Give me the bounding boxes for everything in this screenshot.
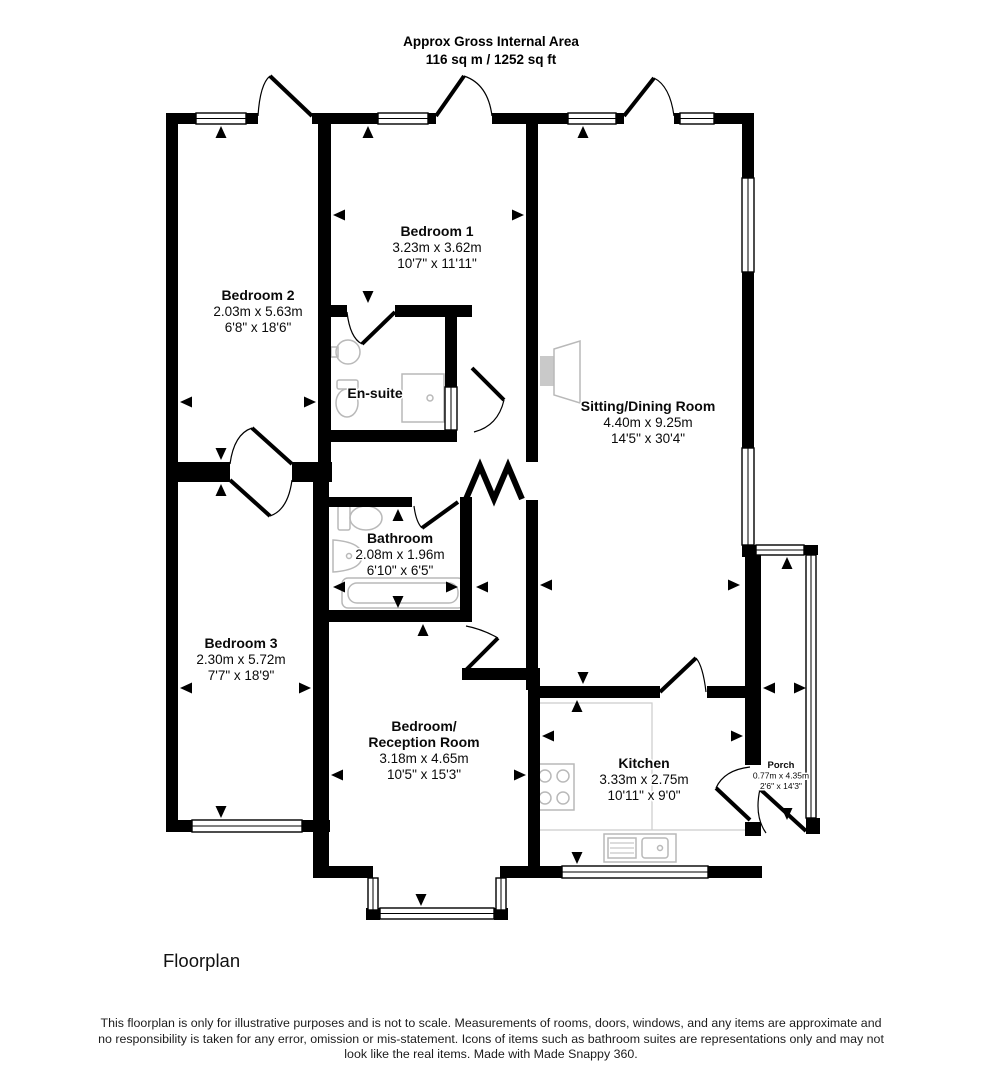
wall-segment	[313, 497, 412, 507]
wall-segment	[708, 866, 762, 878]
door-icon	[230, 428, 292, 464]
wall-segment	[707, 686, 745, 698]
measure-arrow-icon	[514, 770, 526, 781]
measure-arrow-icon	[180, 683, 192, 694]
measure-arrow-icon	[333, 582, 345, 593]
windows	[192, 113, 816, 919]
opening-zigzag-icon	[466, 466, 522, 499]
wall-segment	[395, 305, 472, 317]
room-label-text: 3.18m x 4.65m	[379, 751, 468, 766]
room-label-text: 2.30m x 5.72m	[196, 652, 285, 667]
window-icon	[378, 113, 428, 124]
door-icon	[716, 767, 750, 820]
room-label-text: Bedroom/	[391, 718, 456, 734]
wall-segment	[806, 818, 820, 834]
door-icon	[472, 368, 504, 432]
door-icon	[436, 76, 492, 116]
measure-arrow-icon	[363, 126, 374, 138]
room-label-text: En-suite	[347, 385, 402, 401]
room-label-kitchen: Kitchen3.33m x 2.75m10'11" x 9'0"	[599, 755, 688, 803]
measure-arrow-icon	[418, 624, 429, 636]
wall-segment	[166, 820, 192, 832]
wall-segment	[318, 430, 457, 442]
room-label-text: 2.03m x 5.63m	[213, 304, 302, 319]
measure-arrow-icon	[331, 770, 343, 781]
wall-segment	[528, 668, 540, 878]
wall-segment	[313, 472, 329, 878]
wall-segment	[540, 866, 562, 878]
wall-segment	[745, 553, 761, 765]
room-label-porch: Porch0.77m x 4.35m2'6" x 14'3"	[753, 760, 809, 791]
measure-arrow-icon	[542, 731, 554, 742]
measure-arrow-icon	[728, 580, 740, 591]
door-icon	[258, 76, 312, 116]
wall-segment	[318, 113, 331, 462]
door-icon	[466, 626, 498, 670]
room-label-text: Bathroom	[367, 530, 433, 546]
measure-arrow-icon	[363, 291, 374, 303]
measure-arrow-icon	[393, 509, 404, 521]
room-label-en-suite: En-suite	[347, 385, 402, 401]
shower-tray-icon	[402, 374, 444, 422]
wall-segment	[674, 113, 680, 124]
toilet-icon	[350, 506, 382, 530]
measure-arrow-icon	[572, 852, 583, 864]
floorplan-page: Approx Gross Internal Area 116 sq m / 12…	[0, 0, 982, 1080]
window-icon	[742, 178, 754, 272]
bath-icon	[348, 583, 458, 603]
measure-arrow-icon	[572, 700, 583, 712]
wall-segment	[166, 472, 230, 482]
wall-segment	[742, 545, 756, 557]
wall-segment	[526, 500, 538, 690]
room-label-text: 10'7" x 11'11"	[397, 256, 477, 271]
wall-segment	[445, 317, 457, 387]
room-label-text: 6'8" x 18'6"	[225, 320, 292, 335]
window-icon	[680, 113, 714, 124]
door-icon	[758, 789, 806, 833]
measure-arrow-icon	[216, 448, 227, 460]
measure-arrow-icon	[763, 683, 775, 694]
measure-arrow-icon	[578, 126, 589, 138]
floorplan-svg: Bedroom 13.23m x 3.62m10'7" x 11'11"Bedr…	[0, 0, 982, 1080]
basin-icon	[336, 340, 360, 364]
fireplace-icon	[554, 341, 580, 403]
window-icon	[196, 113, 246, 124]
room-label-sitting-dining-room: Sitting/Dining Room4.40m x 9.25m14'5" x …	[581, 398, 716, 446]
window-icon	[742, 448, 754, 545]
window-icon	[496, 878, 506, 910]
disclaimer-text: This floorplan is only for illustrative …	[95, 1016, 887, 1063]
wall-segment	[804, 545, 818, 555]
room-label-text: Kitchen	[618, 755, 669, 771]
room-label-text: Reception Room	[368, 734, 479, 750]
door-icon	[230, 480, 292, 516]
measure-arrow-icon	[782, 557, 793, 569]
measure-arrow-icon	[216, 126, 227, 138]
measure-arrow-icon	[393, 596, 404, 608]
room-label-text: 6'10" x 6'5"	[367, 563, 434, 578]
walls	[166, 113, 820, 920]
door-icon	[347, 312, 395, 344]
room-label-text: 4.40m x 9.25m	[603, 415, 692, 430]
window-icon	[568, 113, 616, 124]
measure-arrows	[180, 126, 806, 906]
window-icon	[380, 908, 494, 919]
fireplace-icon	[540, 356, 554, 386]
wall-segment	[742, 272, 754, 448]
wall-segment	[246, 113, 258, 124]
room-labels: Bedroom 13.23m x 3.62m10'7" x 11'11"Bedr…	[196, 223, 809, 803]
wall-segment	[538, 686, 660, 698]
wall-segment	[318, 305, 347, 317]
floorplan-caption: Floorplan	[163, 950, 240, 972]
measure-arrow-icon	[299, 683, 311, 694]
measure-arrow-icon	[731, 731, 743, 742]
sink-icon	[347, 554, 352, 559]
door-icon	[624, 78, 674, 116]
opening	[466, 466, 522, 499]
measure-arrow-icon	[216, 806, 227, 818]
measure-arrow-icon	[333, 210, 345, 221]
room-label-text: 10'5" x 15'3"	[387, 767, 461, 782]
room-label-text: 3.33m x 2.75m	[599, 772, 688, 787]
window-icon	[192, 820, 302, 832]
wall-segment	[526, 113, 538, 462]
measure-arrow-icon	[540, 580, 552, 591]
room-label-text: 7'7" x 18'9"	[208, 668, 275, 683]
room-label-text: 14'5" x 30'4"	[611, 431, 685, 446]
room-label-bathroom: Bathroom2.08m x 1.96m6'10" x 6'5"	[355, 530, 444, 578]
measure-arrow-icon	[180, 397, 192, 408]
room-label-bedroom-2: Bedroom 22.03m x 5.63m6'8" x 18'6"	[213, 287, 302, 335]
room-label-text: Bedroom 3	[204, 635, 277, 651]
measure-arrow-icon	[512, 210, 524, 221]
measure-arrow-icon	[216, 484, 227, 496]
room-label-text: Porch	[768, 760, 795, 771]
wall-segment	[742, 113, 754, 178]
door-icon	[660, 658, 706, 692]
room-label-text: Bedroom 2	[221, 287, 294, 303]
room-label-bedroom-reception-room: Bedroom/Reception Room3.18m x 4.65m10'5"…	[368, 718, 479, 782]
wall-segment	[745, 822, 761, 836]
measure-arrow-icon	[578, 672, 589, 684]
room-label-bedroom-1: Bedroom 13.23m x 3.62m10'7" x 11'11"	[392, 223, 481, 271]
window-icon	[368, 878, 378, 910]
window-icon	[562, 866, 708, 878]
wall-segment	[460, 497, 472, 622]
wall-segment	[292, 462, 332, 472]
wall-segment	[313, 866, 373, 878]
measure-arrow-icon	[794, 683, 806, 694]
wall-segment	[500, 866, 540, 878]
room-label-text: 3.23m x 3.62m	[392, 240, 481, 255]
room-label-text: 0.77m x 4.35m	[753, 771, 809, 781]
room-label-bedroom-3: Bedroom 32.30m x 5.72m7'7" x 18'9"	[196, 635, 285, 683]
measure-arrow-icon	[416, 894, 427, 906]
wall-segment	[313, 610, 470, 622]
room-label-text: Sitting/Dining Room	[581, 398, 716, 414]
measure-arrow-icon	[304, 397, 316, 408]
room-label-text: 2.08m x 1.96m	[355, 547, 444, 562]
toilet-icon	[338, 506, 350, 530]
door-icon	[414, 502, 458, 528]
room-label-text: 2'6" x 14'3"	[760, 781, 802, 791]
window-icon	[445, 387, 457, 430]
wall-segment	[166, 462, 230, 472]
measure-arrow-icon	[476, 582, 488, 593]
window-icon	[756, 545, 804, 555]
room-label-text: 10'11" x 9'0"	[607, 788, 680, 803]
room-label-text: Bedroom 1	[400, 223, 473, 239]
